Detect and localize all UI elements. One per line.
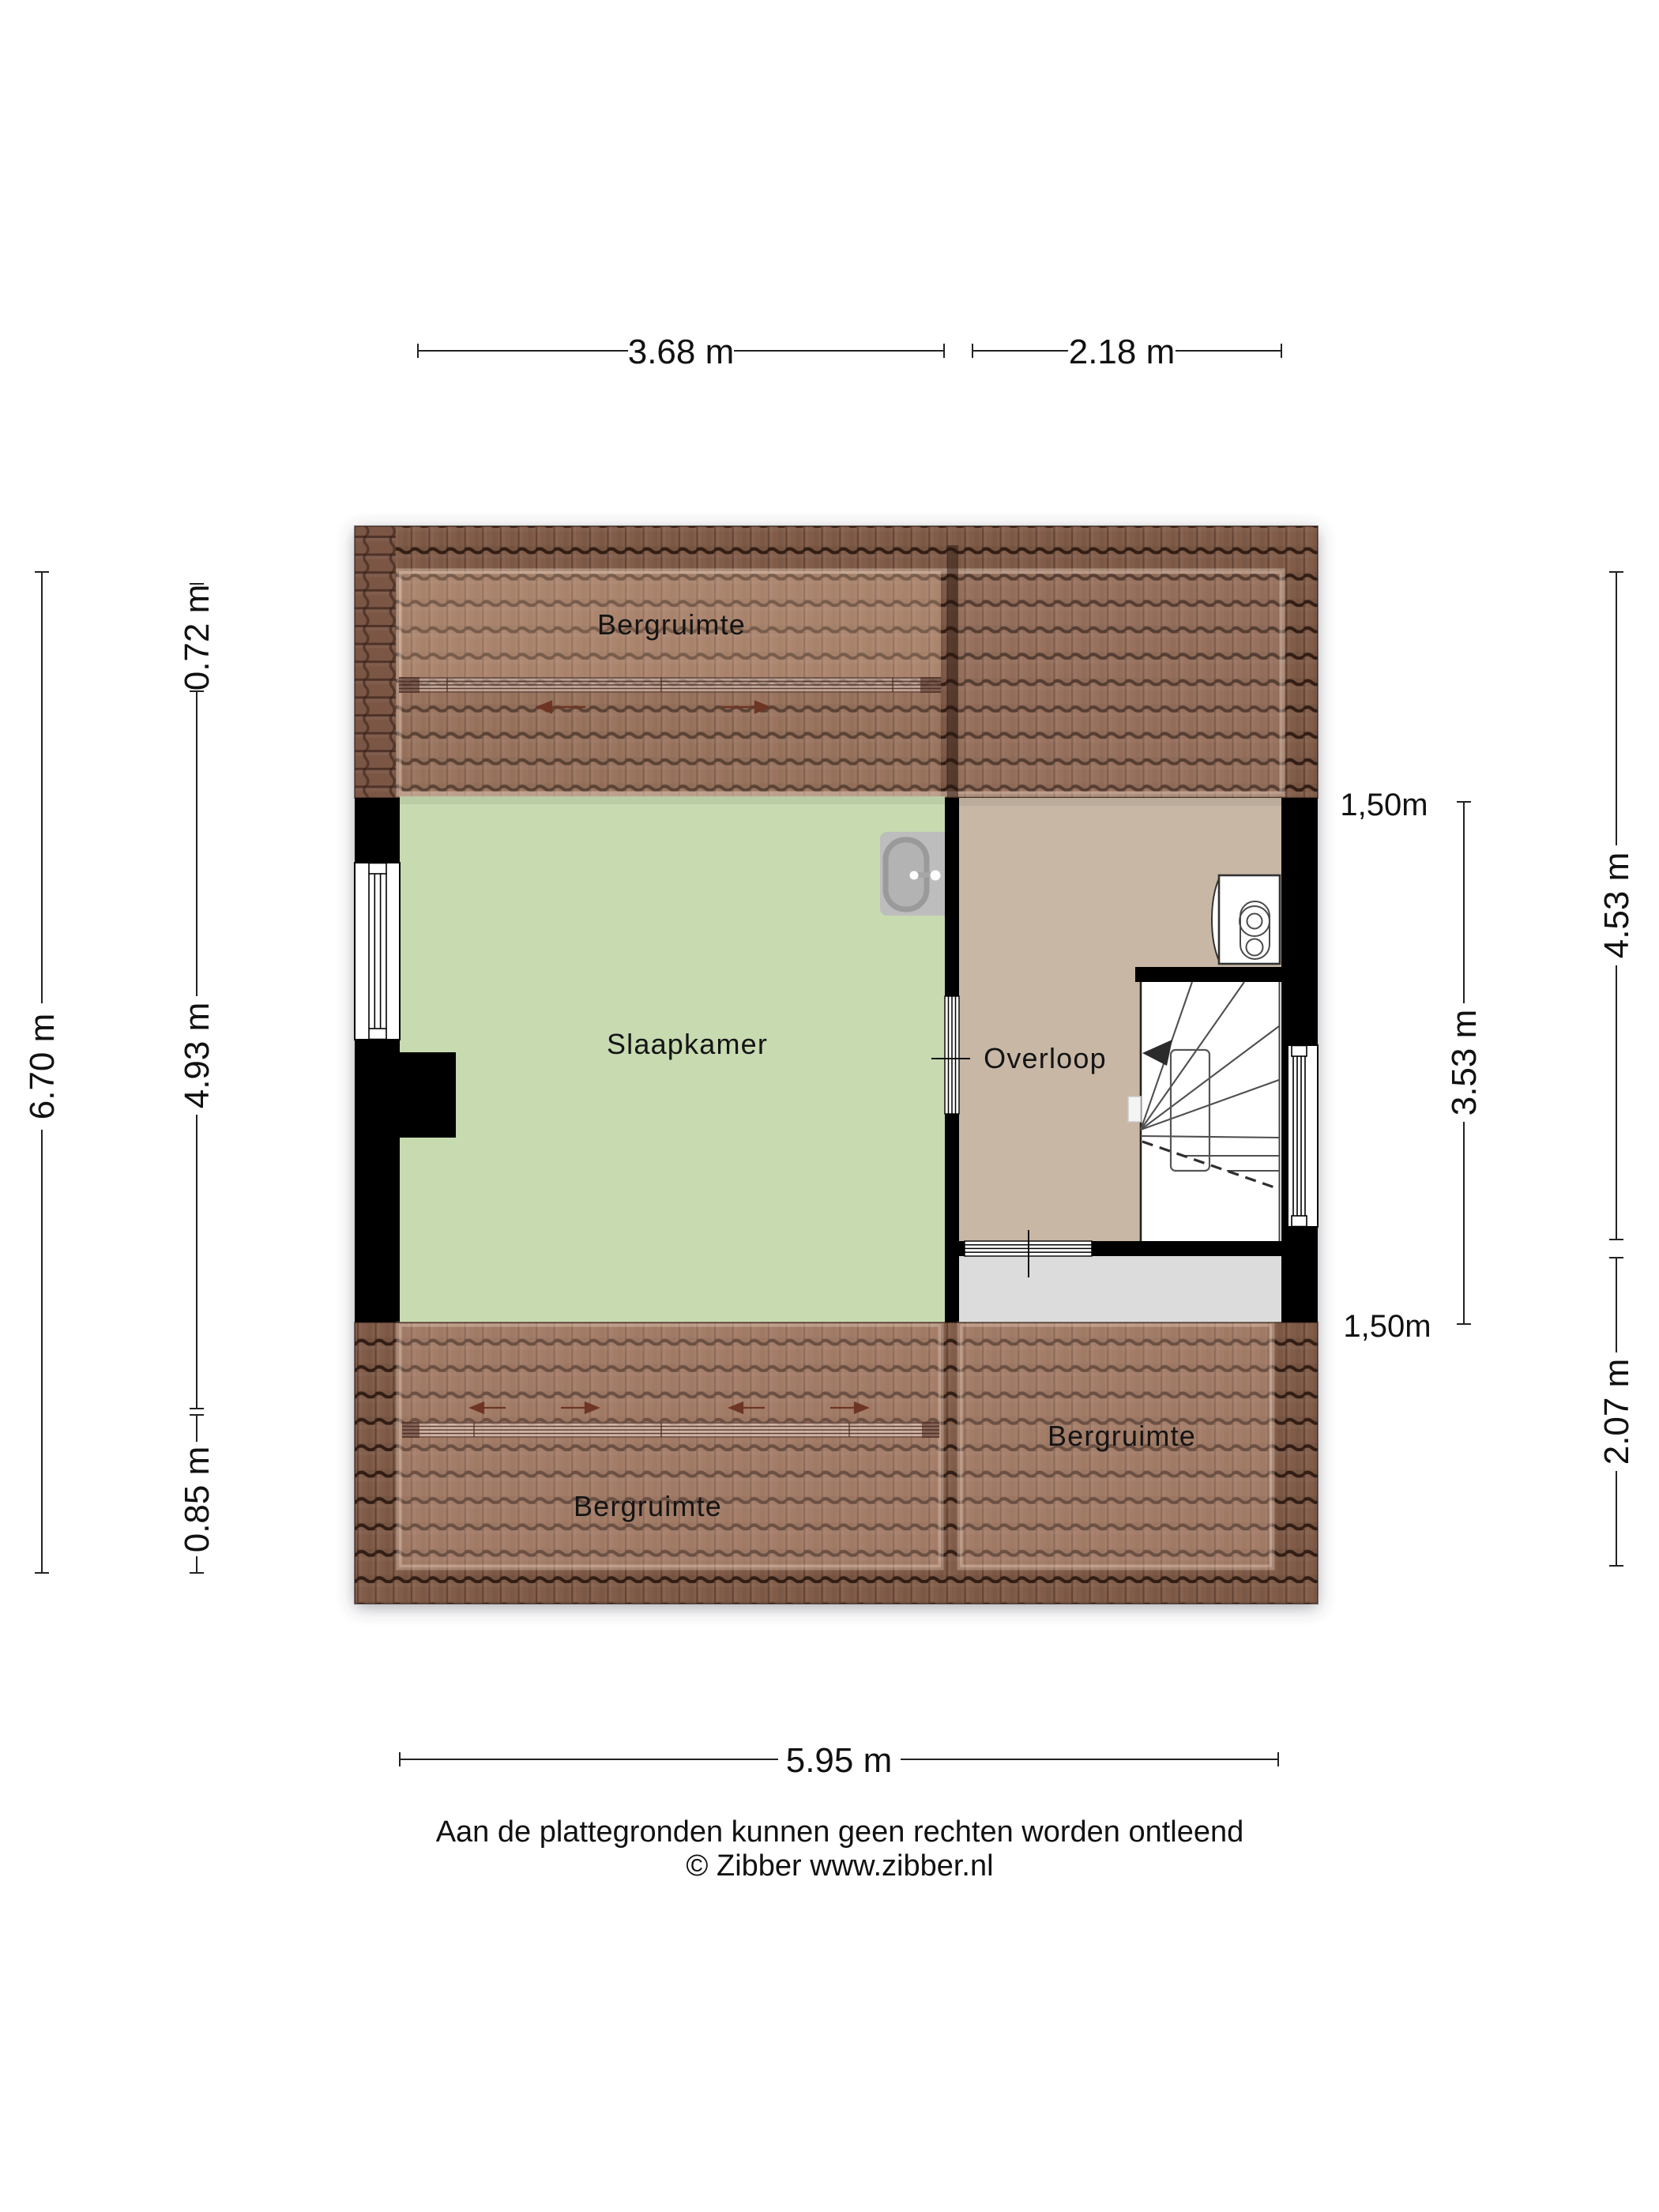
svg-text:Slaapkamer: Slaapkamer bbox=[607, 1028, 768, 1060]
svg-text:Bergruimte: Bergruimte bbox=[1048, 1420, 1196, 1452]
svg-text:0.72 m: 0.72 m bbox=[178, 585, 216, 691]
svg-text:Aan de plattegronden kunnen ge: Aan de plattegronden kunnen geen rechten… bbox=[436, 1815, 1244, 1849]
svg-text:6.70 m: 6.70 m bbox=[23, 1014, 62, 1120]
svg-text:0.85 m: 0.85 m bbox=[178, 1446, 216, 1553]
svg-text:2.18 m: 2.18 m bbox=[1069, 333, 1176, 371]
svg-text:© Zibber www.zibber.nl: © Zibber www.zibber.nl bbox=[686, 1849, 993, 1883]
svg-text:Bergruimte: Bergruimte bbox=[574, 1490, 722, 1522]
svg-text:4.93 m: 4.93 m bbox=[178, 1003, 216, 1109]
svg-text:1,50m: 1,50m bbox=[1343, 1309, 1431, 1344]
svg-text:Bergruimte: Bergruimte bbox=[597, 608, 746, 641]
svg-text:Overloop: Overloop bbox=[984, 1042, 1107, 1074]
svg-text:3.53 m: 3.53 m bbox=[1445, 1010, 1484, 1116]
svg-text:3.68 m: 3.68 m bbox=[628, 333, 735, 371]
svg-text:2.07 m: 2.07 m bbox=[1597, 1359, 1636, 1465]
svg-text:4.53 m: 4.53 m bbox=[1597, 852, 1636, 959]
svg-text:5.95 m: 5.95 m bbox=[786, 1741, 893, 1780]
svg-text:1,50m: 1,50m bbox=[1340, 788, 1428, 822]
